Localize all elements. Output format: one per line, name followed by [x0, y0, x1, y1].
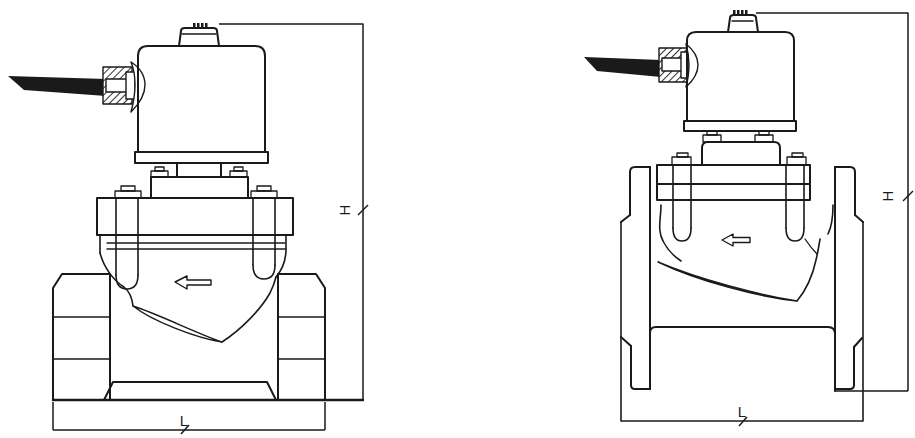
- height-dimension-label: H: [336, 205, 353, 216]
- bonnet-cap: [702, 142, 780, 165]
- height-dimension-label: H: [879, 191, 896, 202]
- valve-threaded-figure: H L: [8, 23, 368, 434]
- casting-shoulder-right: [828, 205, 833, 234]
- technical-drawing: H L: [0, 0, 915, 438]
- coil-connector: [728, 15, 758, 32]
- coil-body: [687, 32, 794, 121]
- flange-bolt-left: [115, 186, 141, 198]
- flow-arrow-left-icon: [722, 234, 750, 246]
- coil-base-plate: [135, 152, 268, 163]
- valve-bonnet: [657, 131, 810, 241]
- guide-stud-right: [253, 198, 275, 279]
- hex-port-left: [53, 274, 110, 400]
- bonnet-bolt-right: [230, 167, 247, 177]
- bonnet-plate-lower: [657, 184, 810, 200]
- body-shoulder-lines: [100, 235, 286, 253]
- hex-port-right: [278, 274, 325, 400]
- cable-icon: [584, 57, 661, 77]
- valve-body: [621, 167, 863, 421]
- casting-curve-left: [660, 205, 681, 261]
- body-flange-block: [97, 198, 293, 235]
- coil-base-plate: [684, 121, 796, 131]
- coil-neck: [177, 163, 221, 177]
- casting-curve-right: [222, 277, 276, 342]
- casting-fold: [133, 306, 222, 342]
- bonnet-plate-upper: [657, 165, 810, 184]
- bonnet-bolt-right: [787, 153, 806, 165]
- casting-fold: [658, 262, 797, 301]
- flange-left: [621, 167, 650, 421]
- power-cable: [584, 44, 698, 87]
- gland-collar: [126, 72, 135, 99]
- flow-arrow-left-icon: [175, 276, 211, 289]
- valve-body: [53, 249, 363, 400]
- bonnet-bolt-left: [151, 167, 168, 177]
- bonnet-bolt-left: [672, 153, 691, 165]
- length-dimension-label: L: [738, 403, 746, 420]
- coil-nut-left: [703, 131, 721, 142]
- guide-stud-right: [786, 165, 804, 241]
- drawing-canvas: H L: [0, 0, 915, 438]
- power-cable: [8, 62, 145, 112]
- guide-stud-left: [673, 165, 691, 241]
- solenoid-coil: [684, 10, 796, 131]
- casting-curve-right: [797, 239, 820, 301]
- casting-shoulder-right: [276, 249, 286, 277]
- coil-body: [138, 46, 265, 152]
- coil-connector: [179, 28, 219, 46]
- coil-nut-right: [755, 131, 773, 142]
- valve-bonnet: [97, 163, 293, 289]
- solenoid-coil: [135, 23, 268, 163]
- length-dimension: L: [53, 402, 325, 434]
- gasket-lines: [107, 243, 285, 249]
- pipe-bottom-section: [650, 327, 835, 389]
- casting-curve-stud: [805, 239, 817, 254]
- flange-right: [835, 167, 863, 421]
- length-dimension: L: [621, 403, 863, 426]
- bonnet-plate: [151, 177, 248, 198]
- flange-bolt-right: [251, 186, 277, 198]
- valve-flanged-figure: H L: [584, 10, 913, 426]
- body-bottom-step: [104, 382, 276, 400]
- length-dimension-label: L: [180, 412, 188, 429]
- cable-icon: [8, 76, 106, 96]
